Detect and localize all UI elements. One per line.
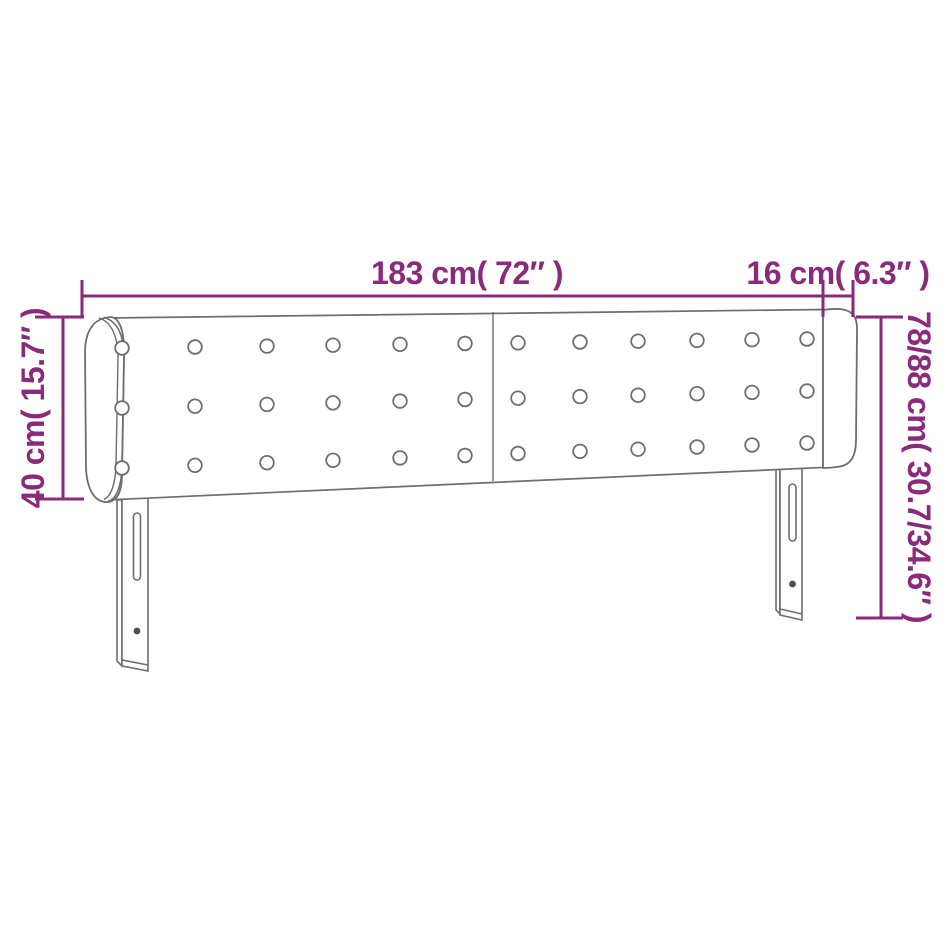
button-tuft	[458, 449, 472, 463]
button-tuft	[800, 332, 814, 346]
right-leg-screw-hole	[789, 581, 796, 588]
width-dimension-label: 183 cm( 72″ )	[371, 255, 563, 291]
button-tuft	[631, 388, 645, 402]
button-tuft	[260, 398, 274, 412]
right-leg-slot	[789, 484, 796, 541]
button-tuft	[326, 338, 340, 352]
button-tuft	[393, 338, 407, 352]
button-tuft	[511, 336, 525, 350]
button-tuft	[745, 438, 759, 452]
button-tuft	[511, 447, 525, 461]
button-tuft	[690, 334, 704, 348]
dimension-diagram: 183 cm( 72″ ) 16 cm( 6.3″ ) 40 cm( 15.7″…	[0, 0, 947, 947]
button-tuft	[458, 393, 472, 407]
headboard-illustration: 183 cm( 72″ ) 16 cm( 6.3″ ) 40 cm( 15.7″…	[0, 0, 947, 947]
button-tuft	[115, 341, 129, 355]
button-tuft	[800, 384, 814, 398]
button-tuft	[690, 387, 704, 401]
button-tuft	[260, 339, 274, 353]
button-tuft	[573, 445, 587, 459]
button-tuft	[511, 391, 525, 405]
button-tuft	[115, 461, 129, 475]
button-tuft	[800, 436, 814, 450]
button-tuft	[188, 340, 202, 354]
headboard-right-ear	[823, 309, 857, 468]
button-tuft	[188, 459, 202, 473]
button-tuft	[115, 401, 129, 415]
right-leg	[776, 465, 802, 620]
button-tuft	[260, 456, 274, 470]
left-leg-slot	[134, 513, 141, 580]
button-tuft	[631, 442, 645, 456]
button-tuft	[188, 399, 202, 413]
button-tuft	[393, 394, 407, 408]
button-tuft	[326, 396, 340, 410]
total-height-dimension-label: 78/88 cm( 30.7/34.6″ )	[901, 311, 937, 623]
button-tuft	[745, 333, 759, 347]
button-tuft	[631, 334, 645, 348]
button-tuft	[690, 440, 704, 454]
button-tuft	[573, 335, 587, 349]
button-tuft	[458, 337, 472, 351]
button-tuft	[745, 386, 759, 400]
left-leg-screw-hole	[134, 628, 141, 635]
ear-dimension-label: 16 cm( 6.3″ )	[746, 255, 929, 291]
button-tuft	[393, 451, 407, 465]
side-height-dimension-label: 40 cm( 15.7″ )	[15, 308, 51, 508]
button-tuft	[326, 454, 340, 468]
left-leg	[117, 497, 148, 671]
button-tuft	[573, 390, 587, 404]
